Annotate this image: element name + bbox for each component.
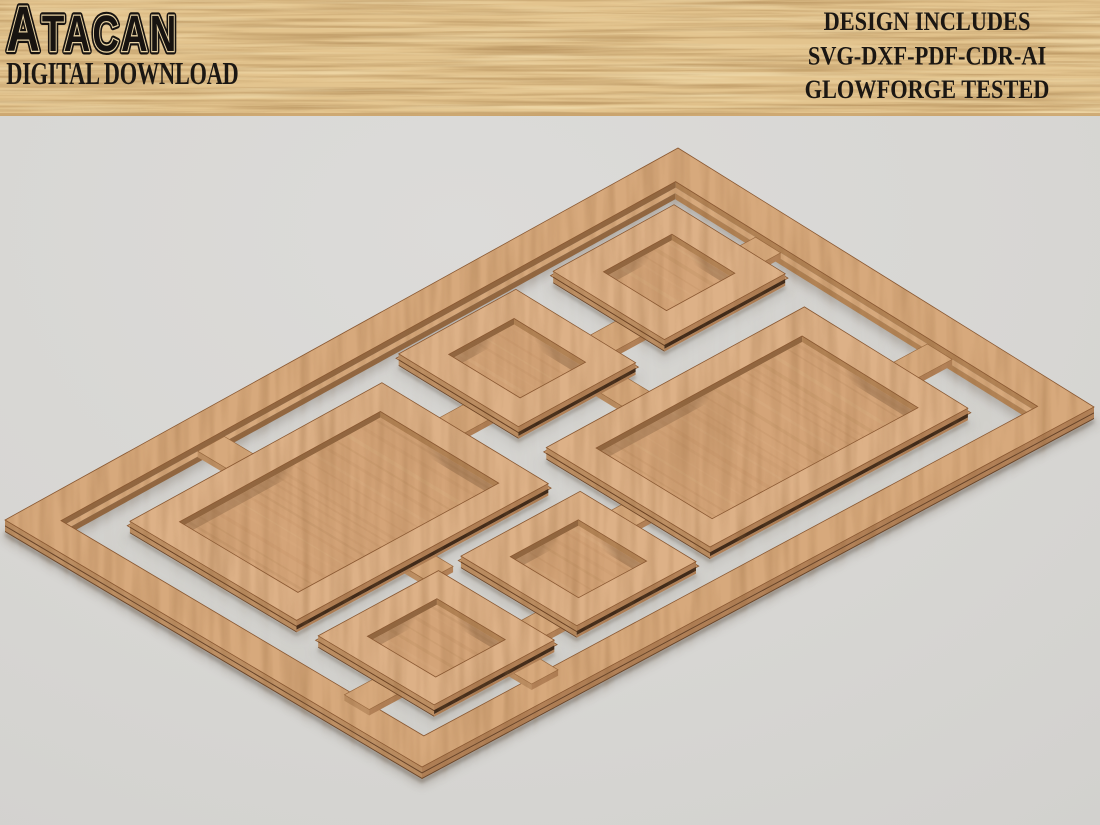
svg-text:DIGITAL DOWNLOAD: DIGITAL DOWNLOAD <box>6 55 238 91</box>
svg-text:DESIGN INCLUDES: DESIGN INCLUDES <box>824 7 1031 36</box>
svg-text:SVG-DXF-PDF-CDR-AI: SVG-DXF-PDF-CDR-AI <box>808 42 1046 71</box>
svg-text:GLOWFORGE TESTED: GLOWFORGE TESTED <box>805 75 1050 104</box>
